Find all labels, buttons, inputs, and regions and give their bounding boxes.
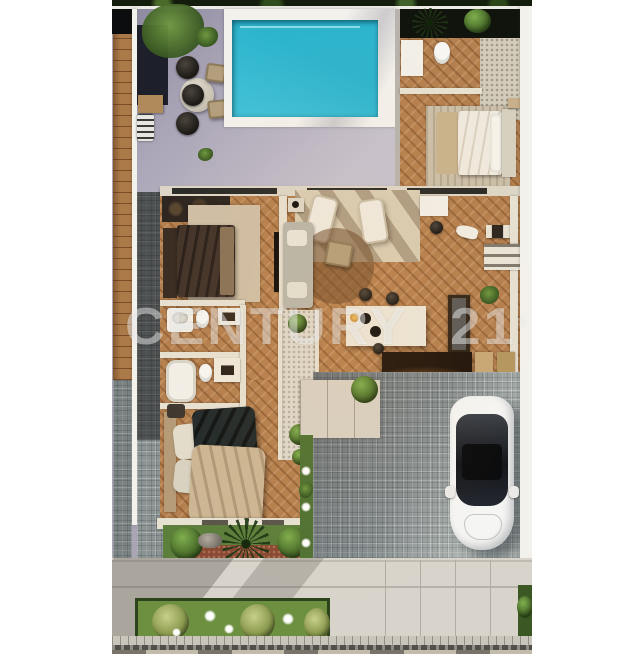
- watermark-word-century: CENTURY: [125, 297, 409, 355]
- window-glass-1: [172, 188, 277, 194]
- planter-palm: [412, 8, 448, 38]
- right-planter-bush: [517, 596, 532, 618]
- left-white-margin: [0, 0, 112, 654]
- page: CENTURY21®: [0, 0, 630, 654]
- master-duvet-beige: [188, 444, 266, 526]
- toilet-bath2: [199, 364, 212, 382]
- watermark: CENTURY21®: [125, 296, 526, 356]
- outdoor-console: [138, 95, 163, 113]
- aerial-render: CENTURY21®: [112, 0, 532, 654]
- car-mirror-right: [509, 486, 519, 498]
- sidewalk-joint-v1: [385, 560, 386, 640]
- street-bottom: [112, 650, 532, 654]
- planter-bush-1: [152, 604, 189, 640]
- bathtub: [166, 360, 196, 402]
- bedroom2-foot-blanket: [220, 227, 234, 295]
- dining-chair-dark-1: [176, 56, 199, 79]
- sidewalk-joint-v3: [455, 560, 456, 640]
- car-sunroof: [462, 444, 502, 480]
- toilet-rear: [434, 42, 450, 64]
- car-hood-crease: [464, 514, 502, 540]
- desk-chair: [430, 221, 443, 234]
- bedroom2-headboard: [163, 228, 177, 298]
- watermark-word-21: 21: [450, 297, 517, 355]
- planter-bush-2: [240, 604, 275, 640]
- step-bush: [351, 376, 378, 403]
- lawn-flower-3: [301, 538, 311, 548]
- neighbor-dark-opening: [112, 9, 133, 34]
- bedroom1-throw: [436, 112, 460, 174]
- sofa-cushion-1: [287, 230, 307, 246]
- sidewalk-joint-v4: [490, 560, 491, 640]
- bed-bench: [167, 404, 185, 418]
- bathroom-bench: [401, 40, 423, 76]
- planter-flower-2: [224, 624, 234, 634]
- planter-flower-1: [204, 610, 216, 622]
- right-white-margin: [532, 0, 630, 654]
- swimming-pool: [232, 20, 378, 117]
- desk: [420, 196, 448, 216]
- bedroom1-headboard: [502, 109, 516, 177]
- car-mirror-left: [445, 486, 455, 498]
- garden-rocks: [198, 533, 222, 548]
- dining-chair-dark-2: [176, 112, 199, 135]
- table-centerpiece: [182, 84, 204, 106]
- registered-mark: ®: [517, 315, 526, 329]
- lawn-flower-2: [301, 502, 311, 512]
- table-lamp: [292, 201, 299, 208]
- neighbor-side-path: [113, 380, 132, 560]
- pool-lane-line: [240, 26, 360, 28]
- car: [450, 396, 514, 550]
- grill-station: [137, 114, 154, 141]
- perimeter-wall-right: [520, 6, 532, 562]
- planter-shrub: [464, 9, 491, 33]
- planter-flower-3: [282, 613, 294, 625]
- bedroom1-pillows: [490, 114, 502, 172]
- rattan-armchair: [324, 240, 354, 268]
- lawn-flower-1: [301, 466, 311, 476]
- pantry-shelves: [484, 244, 522, 270]
- nightstand: [508, 98, 520, 108]
- sidewalk-joint-v2: [420, 560, 421, 640]
- wing-divider-wall: [400, 88, 482, 94]
- bath2-console: [214, 358, 240, 382]
